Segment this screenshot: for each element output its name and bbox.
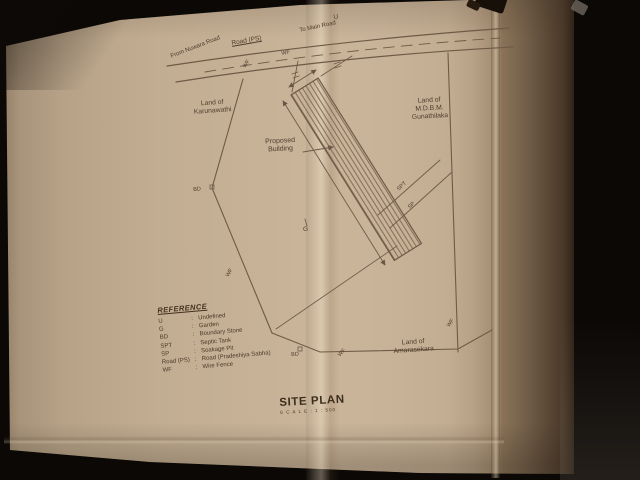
land-label-east: Land of M.D.B.M. Gunathilaka bbox=[392, 95, 467, 122]
utility-mark-u: U bbox=[333, 13, 339, 21]
garden-mark: G bbox=[303, 226, 308, 233]
pen-clip-object bbox=[466, 0, 512, 24]
reference-legend: REFERENCE U : Undefined G : Garden BD : … bbox=[157, 296, 272, 375]
boundary-stone-mark: BD bbox=[291, 351, 299, 358]
photographed-site-plan: From Nuwara Road Road (PS) To Main Road … bbox=[0, 0, 640, 480]
boundary-stone-mark: BD bbox=[193, 186, 201, 193]
title-block: SITE PLAN S C A L E : 1 : 500 bbox=[279, 394, 345, 415]
proposed-building-label: Proposed Building bbox=[256, 136, 305, 155]
